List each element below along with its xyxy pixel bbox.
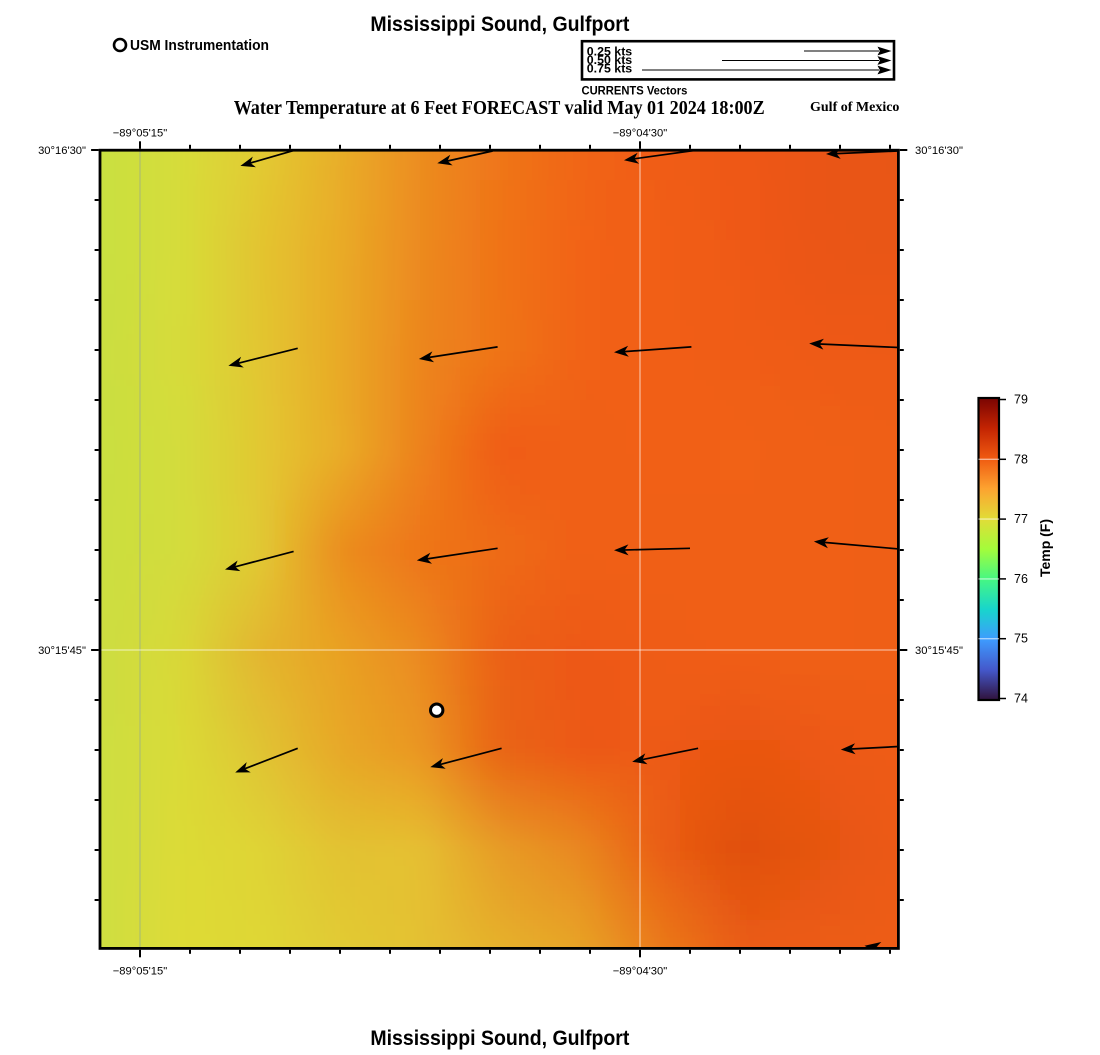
svg-text:−89°04'30": −89°04'30"	[613, 966, 667, 978]
svg-text:Water Temperature at 6 Feet FO: Water Temperature at 6 Feet FORECAST val…	[234, 97, 765, 119]
svg-text:−89°05'15": −89°05'15"	[113, 966, 167, 978]
svg-text:Temp (F): Temp (F)	[1037, 519, 1053, 577]
svg-text:78: 78	[1014, 452, 1028, 466]
svg-text:CURRENTS Vectors: CURRENTS Vectors	[582, 84, 688, 98]
svg-text:74: 74	[1014, 692, 1028, 706]
svg-text:76: 76	[1014, 572, 1028, 586]
svg-text:79: 79	[1014, 393, 1028, 407]
svg-text:−89°04'30": −89°04'30"	[613, 128, 667, 140]
svg-text:30°15'45": 30°15'45"	[38, 645, 86, 657]
svg-text:0.75 kts: 0.75 kts	[587, 64, 632, 76]
svg-text:30°15'45": 30°15'45"	[915, 645, 963, 657]
svg-text:−89°05'15": −89°05'15"	[113, 128, 167, 140]
svg-text:30°16'30": 30°16'30"	[38, 145, 86, 157]
svg-text:Gulf of Mexico: Gulf of Mexico	[810, 100, 899, 115]
svg-text:30°16'30": 30°16'30"	[915, 145, 963, 157]
svg-text:Mississippi Sound, Gulfport: Mississippi Sound, Gulfport	[370, 13, 629, 36]
svg-text:75: 75	[1014, 632, 1028, 646]
svg-text:Mississippi Sound, Gulfport: Mississippi Sound, Gulfport	[370, 1027, 629, 1050]
svg-text:77: 77	[1014, 512, 1028, 526]
svg-text:USM Instrumentation: USM Instrumentation	[130, 38, 269, 54]
